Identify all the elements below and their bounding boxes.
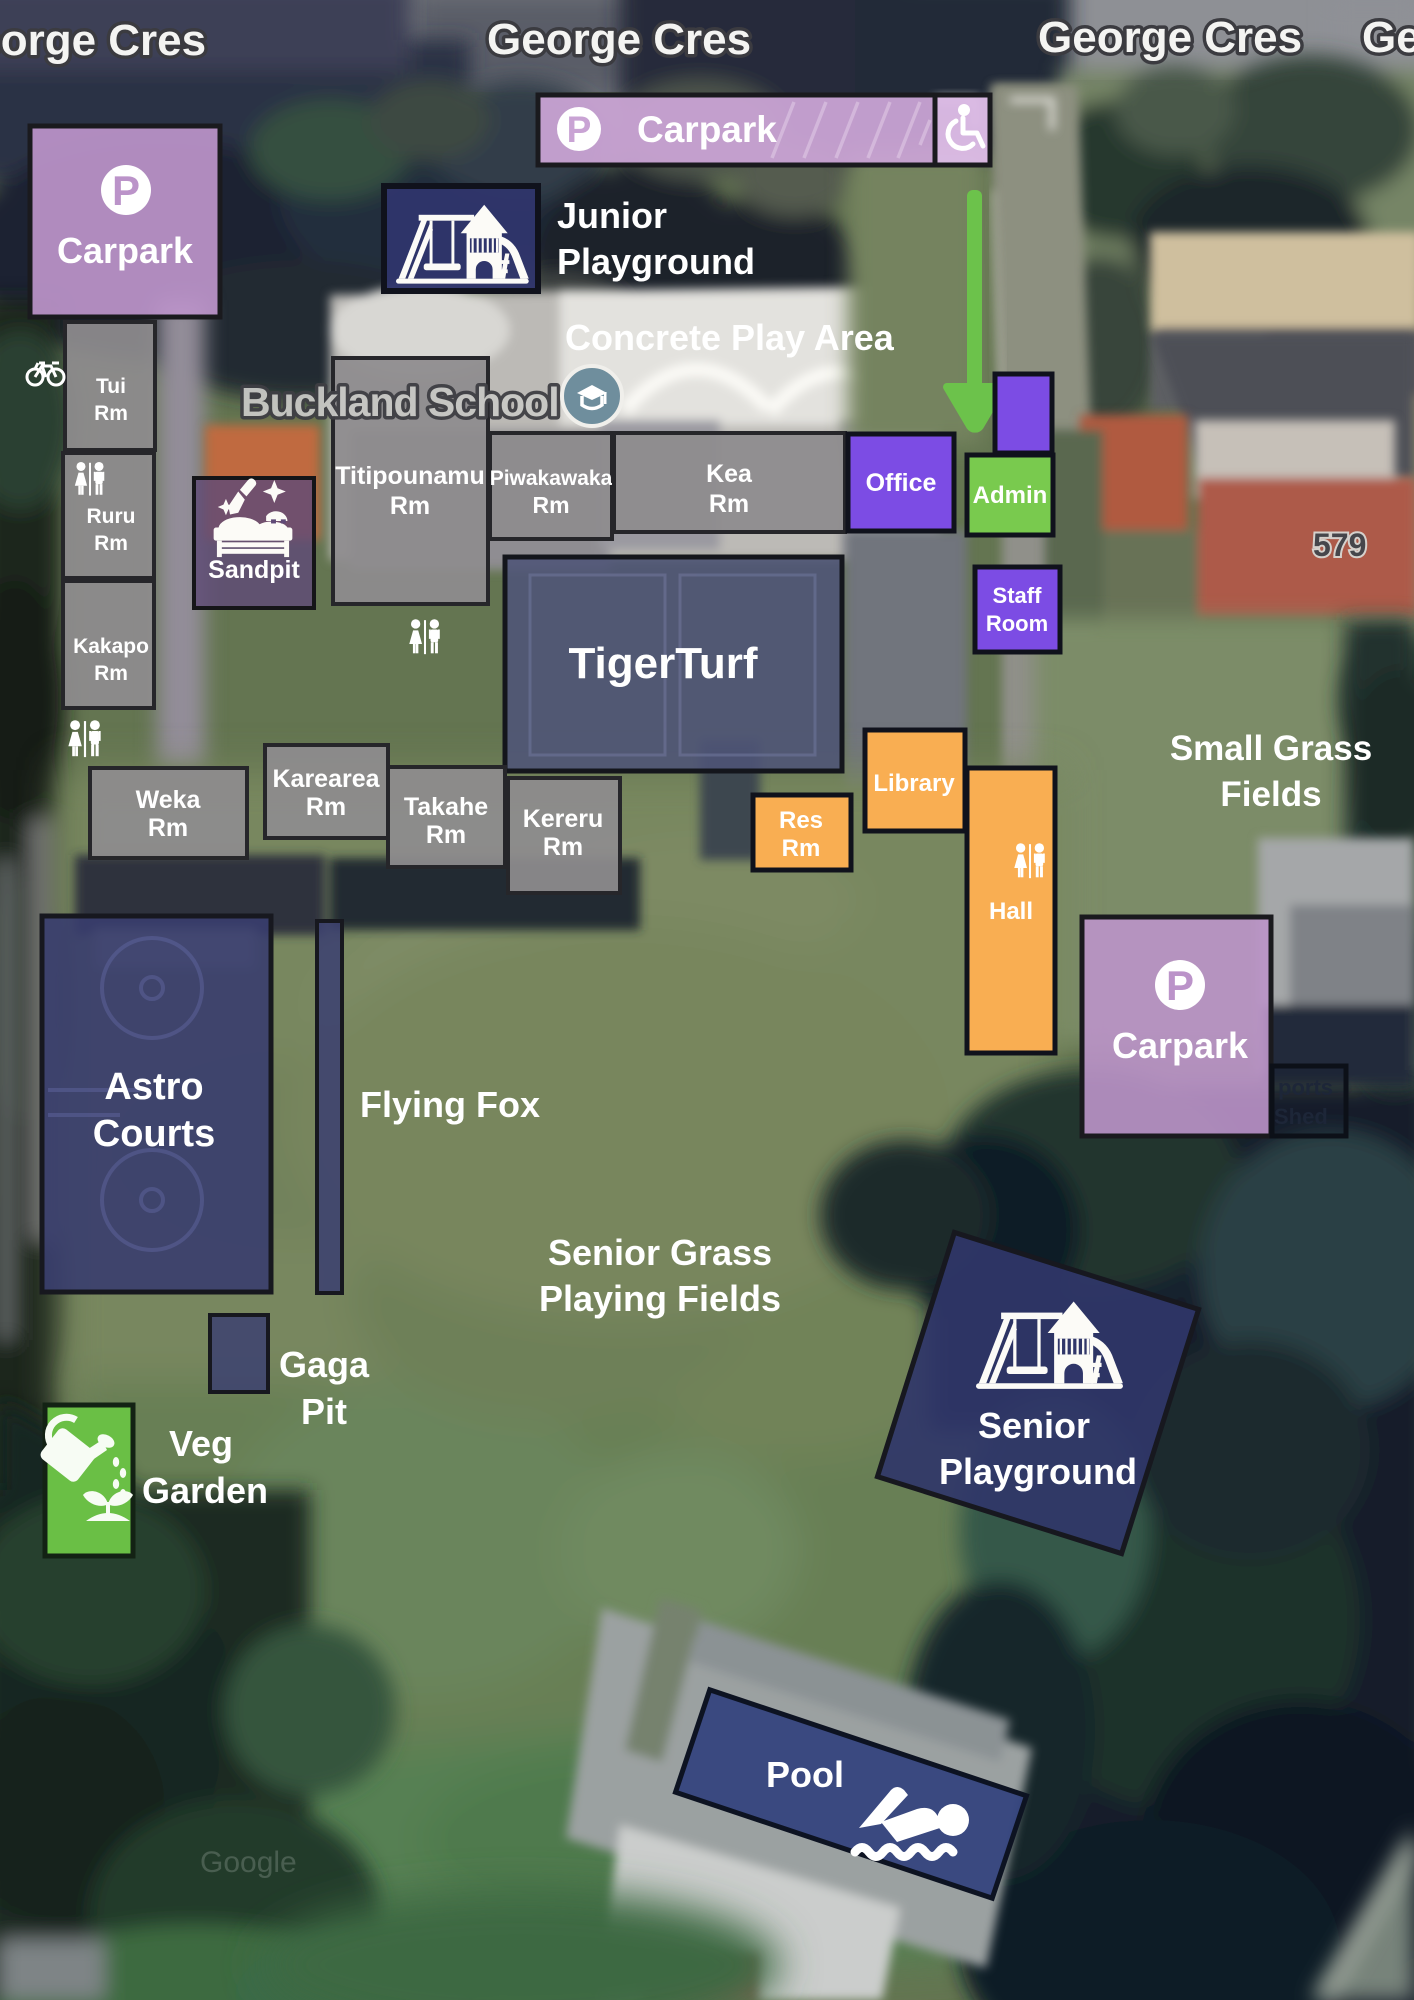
svg-text:Rm: Rm <box>426 821 466 849</box>
svg-text:Takahe: Takahe <box>404 793 488 821</box>
svg-text:Titipounamu: Titipounamu <box>335 462 485 490</box>
svg-text:Concrete Play Area: Concrete Play Area <box>565 317 895 358</box>
svg-text:Rm: Rm <box>94 532 128 555</box>
svg-text:Flying Fox: Flying Fox <box>360 1084 540 1125</box>
svg-text:TigerTurf: TigerTurf <box>568 639 757 688</box>
svg-text:George Cres: George Cres <box>487 15 751 64</box>
svg-text:Pit: Pit <box>301 1391 347 1432</box>
svg-text:Carpark: Carpark <box>57 230 194 271</box>
svg-text:Kereru: Kereru <box>523 805 604 833</box>
svg-text:Res: Res <box>779 807 823 834</box>
svg-text:Rm: Rm <box>306 793 346 821</box>
svg-text:Rm: Rm <box>390 492 430 520</box>
svg-text:Courts: Courts <box>93 1113 215 1155</box>
svg-text:P: P <box>112 167 140 214</box>
svg-text:Rm: Rm <box>94 662 128 685</box>
svg-text:Tui: Tui <box>96 375 126 398</box>
svg-text:Playground: Playground <box>557 241 755 282</box>
svg-text:Senior Grass: Senior Grass <box>548 1232 772 1273</box>
svg-text:Shed: Shed <box>1274 1104 1328 1129</box>
svg-text:Playground: Playground <box>939 1451 1137 1492</box>
svg-text:Room: Room <box>986 611 1048 636</box>
svg-text:Ge: Ge <box>1362 13 1414 62</box>
svg-text:George Cres: George Cres <box>0 16 206 65</box>
svg-text:Small Grass: Small Grass <box>1170 729 1372 768</box>
svg-text:Astro: Astro <box>104 1066 203 1108</box>
svg-text:Library: Library <box>873 770 955 797</box>
svg-text:Pool: Pool <box>766 1754 844 1795</box>
svg-text:Kea: Kea <box>706 460 753 488</box>
svg-text:Rm: Rm <box>709 490 749 518</box>
svg-text:Sandpit: Sandpit <box>208 556 300 584</box>
svg-text:Gaga: Gaga <box>279 1344 370 1385</box>
svg-text:ports: ports <box>1278 1075 1333 1100</box>
svg-text:Karearea: Karearea <box>272 765 380 793</box>
svg-text:Rm: Rm <box>782 835 821 862</box>
svg-text:Carpark: Carpark <box>637 109 777 150</box>
svg-text:Fields: Fields <box>1220 775 1321 814</box>
svg-text:Buckland School: Buckland School <box>241 379 559 425</box>
svg-text:Junior: Junior <box>557 195 667 236</box>
svg-text:Staff: Staff <box>993 583 1043 608</box>
svg-text:Carpark: Carpark <box>1112 1025 1249 1066</box>
svg-text:P: P <box>567 109 592 150</box>
svg-text:Senior: Senior <box>978 1405 1090 1446</box>
svg-text:Office: Office <box>866 469 937 497</box>
svg-text:Playing Fields: Playing Fields <box>539 1278 781 1319</box>
svg-text:P: P <box>1166 962 1194 1009</box>
svg-text:579: 579 <box>1313 527 1366 563</box>
svg-text:Rm: Rm <box>94 402 128 425</box>
svg-text:Garden: Garden <box>142 1470 268 1511</box>
svg-text:Kakapo: Kakapo <box>73 635 149 658</box>
svg-text:Google: Google <box>200 1846 297 1879</box>
svg-text:Weka: Weka <box>136 786 202 814</box>
svg-text:Admin: Admin <box>973 482 1048 509</box>
svg-text:Veg: Veg <box>169 1423 233 1464</box>
svg-text:Ruru: Ruru <box>87 505 136 528</box>
svg-text:Rm: Rm <box>148 814 188 842</box>
svg-text:Hall: Hall <box>989 898 1033 925</box>
svg-text:George Cres: George Cres <box>1038 13 1302 62</box>
svg-text:Piwakawaka: Piwakawaka <box>490 467 613 490</box>
svg-text:Rm: Rm <box>543 833 583 861</box>
svg-text:Rm: Rm <box>532 492 569 518</box>
